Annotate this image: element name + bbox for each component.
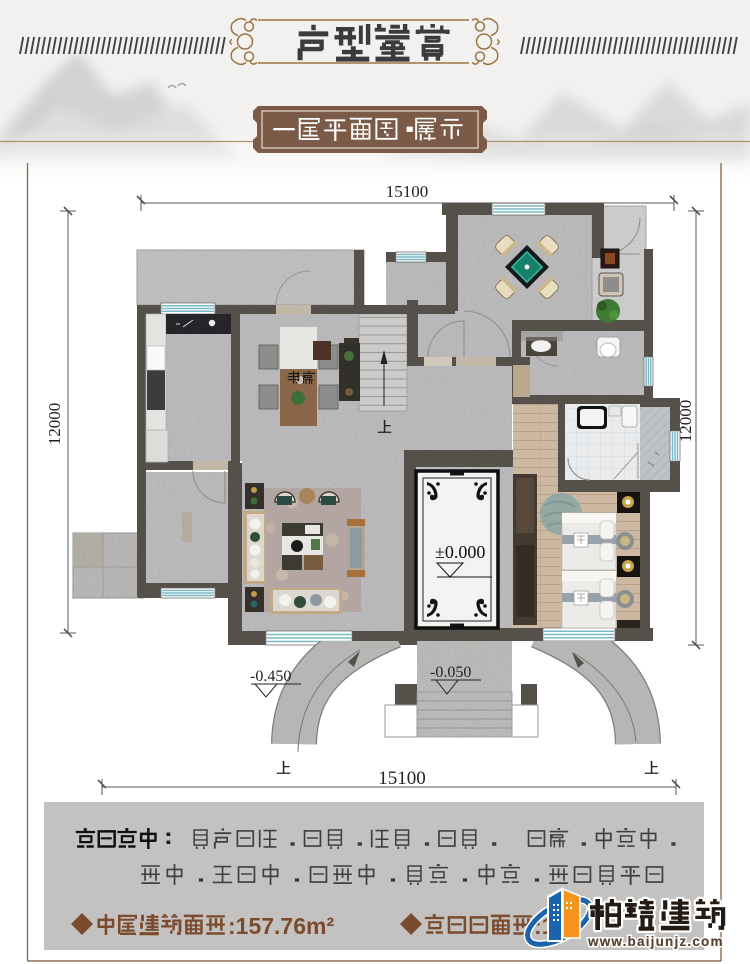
- svg-text::157.76m²: :157.76m²: [228, 913, 334, 939]
- svg-text:15100: 15100: [386, 182, 429, 201]
- svg-text:15100: 15100: [378, 768, 426, 789]
- svg-text:www.baijunjz.com: www.baijunjz.com: [587, 934, 724, 949]
- svg-text:-0.050: -0.050: [430, 664, 471, 681]
- svg-text:±0.000: ±0.000: [435, 542, 485, 562]
- svg-text:12000: 12000: [676, 400, 695, 443]
- svg-text:12000: 12000: [45, 403, 64, 446]
- svg-text:-0.450: -0.450: [250, 668, 291, 685]
